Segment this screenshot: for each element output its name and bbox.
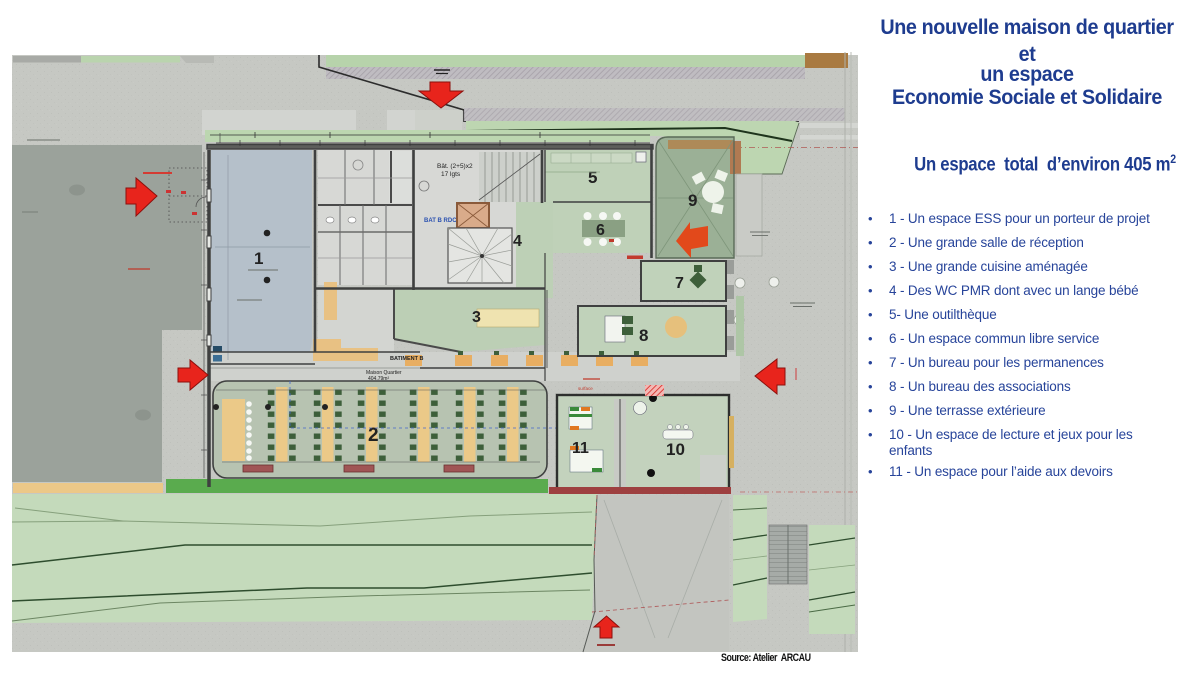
svg-text:9: 9 <box>688 191 697 210</box>
svg-text:Bât. (2+5)x2: Bât. (2+5)x2 <box>437 163 473 170</box>
svg-text:surface: surface <box>578 386 593 391</box>
svg-text:6: 6 <box>596 222 605 239</box>
svg-text:10: 10 <box>666 440 685 459</box>
svg-text:17 lgts: 17 lgts <box>441 171 461 178</box>
svg-text:BAT B RDC: BAT B RDC <box>424 218 457 224</box>
svg-text:8: 8 <box>639 326 648 345</box>
svg-text:5: 5 <box>588 168 597 187</box>
svg-text:4: 4 <box>513 233 522 250</box>
svg-text:1: 1 <box>254 249 263 268</box>
svg-text:BATIMENT B: BATIMENT B <box>390 356 424 362</box>
svg-text:11: 11 <box>572 440 589 457</box>
svg-text:3: 3 <box>472 309 481 326</box>
svg-text:7: 7 <box>675 275 684 292</box>
